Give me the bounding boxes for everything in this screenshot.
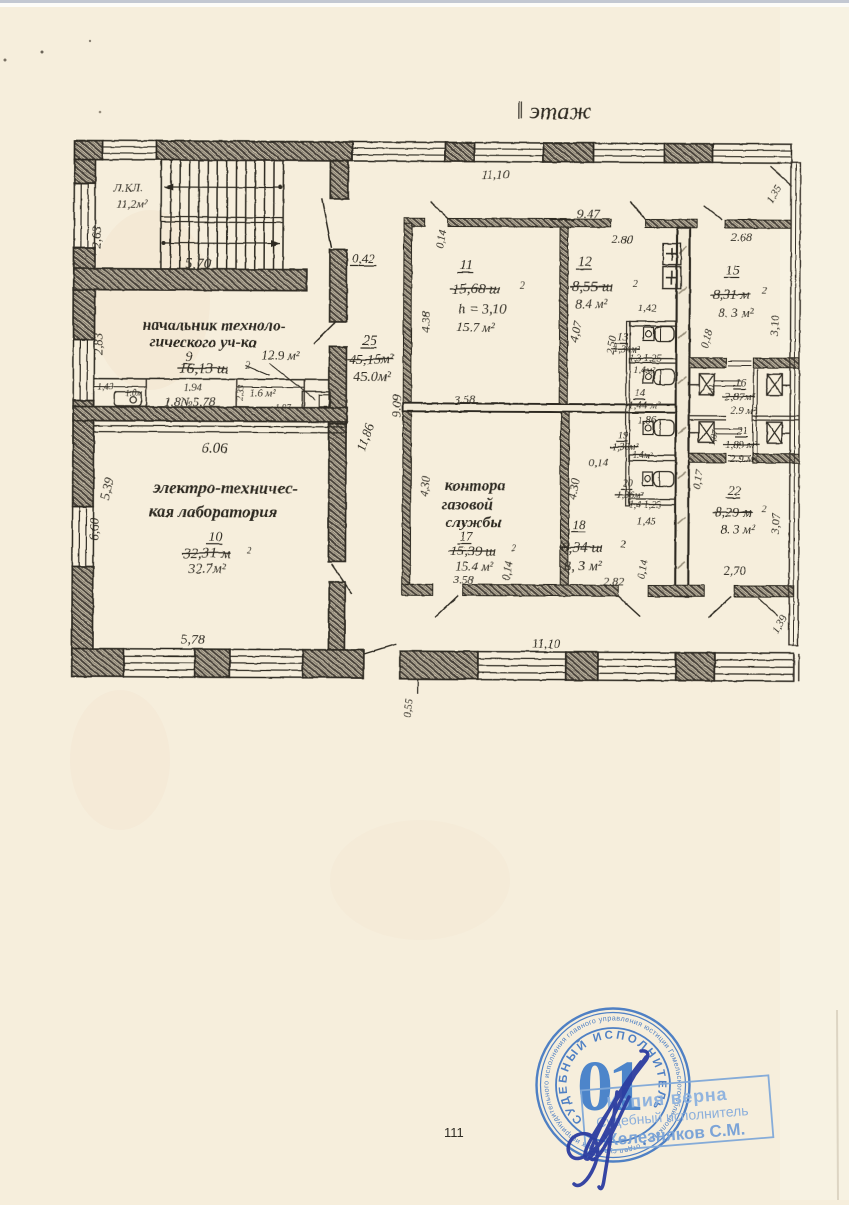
- svg-text:контора: контора: [444, 477, 505, 494]
- svg-text:11: 11: [459, 258, 472, 273]
- svg-text:14: 14: [635, 387, 647, 399]
- svg-text:8,29 м: 8,29 м: [714, 505, 751, 520]
- svg-text:гического уч-ка: гического уч-ка: [149, 333, 256, 351]
- svg-text:12.9 м²: 12.9 м²: [261, 347, 300, 362]
- svg-text:15,68 ш: 15,68 ш: [451, 281, 500, 297]
- svg-text:2,63: 2,63: [88, 225, 103, 248]
- svg-text:6,60: 6,60: [86, 517, 101, 540]
- svg-text:h = 3,10: h = 3,10: [458, 302, 506, 317]
- svg-text:3,10: 3,10: [767, 315, 781, 337]
- svg-text:3.58: 3.58: [453, 392, 475, 406]
- svg-text:1,0: 1,0: [705, 383, 717, 396]
- svg-text:кая лаборатория: кая лаборатория: [148, 501, 277, 521]
- svg-text:2.9 м²: 2.9 м²: [730, 404, 758, 416]
- svg-text:1.4м²: 1.4м²: [633, 365, 656, 376]
- svg-text:начальник техноло-: начальник техноло-: [142, 316, 286, 334]
- svg-text:8.4 м²: 8.4 м²: [575, 296, 608, 311]
- svg-text:32.7м²: 32.7м²: [187, 562, 227, 577]
- svg-text:8,34 ш: 8,34 ш: [561, 540, 602, 556]
- svg-text:Л.КЛ.: Л.КЛ.: [112, 180, 143, 194]
- svg-text:2,33: 2,33: [234, 384, 245, 401]
- svg-text:32,31 м: 32,31 м: [182, 546, 231, 562]
- svg-text:11,10: 11,10: [531, 635, 560, 650]
- svg-text:1,86: 1,86: [637, 414, 657, 426]
- svg-text:2: 2: [511, 542, 516, 552]
- svg-text:1,42: 1,42: [637, 302, 657, 314]
- svg-text:22: 22: [727, 482, 741, 497]
- svg-text:18: 18: [572, 517, 586, 532]
- svg-text:1,4 1,25: 1,4 1,25: [628, 500, 661, 511]
- svg-text:10: 10: [208, 530, 222, 545]
- svg-text:8, 3 м²: 8, 3 м²: [564, 559, 603, 574]
- svg-text:1.0м: 1.0м: [125, 387, 142, 397]
- svg-text:15.4 м²: 15.4 м²: [455, 558, 494, 573]
- svg-text:9.47: 9.47: [577, 206, 600, 221]
- svg-text:2: 2: [761, 286, 766, 297]
- svg-text:ǁ этаж: ǁ этаж: [516, 98, 591, 124]
- svg-text:111: 111: [444, 1125, 464, 1140]
- svg-text:1.4м²: 1.4м²: [632, 450, 652, 460]
- svg-text:2: 2: [632, 278, 637, 289]
- svg-text:16: 16: [735, 376, 747, 388]
- svg-text:2: 2: [620, 539, 625, 550]
- svg-text:8,55 ш: 8,55 ш: [571, 279, 612, 295]
- svg-text:1.94: 1.94: [184, 383, 202, 394]
- svg-text:1,43: 1,43: [98, 381, 114, 391]
- svg-text:15: 15: [725, 263, 739, 278]
- svg-text:11,2м²: 11,2м²: [116, 196, 148, 210]
- svg-text:службы: службы: [445, 514, 501, 531]
- svg-text:20: 20: [622, 478, 632, 489]
- svg-text:2: 2: [519, 280, 524, 291]
- svg-text:2: 2: [761, 504, 766, 515]
- svg-text:9.09: 9.09: [389, 393, 404, 416]
- svg-text:16,13 ш: 16,13 ш: [179, 361, 228, 377]
- svg-text:2,70: 2,70: [723, 562, 746, 577]
- svg-text:45.0м²: 45.0м²: [353, 369, 392, 384]
- svg-text:2: 2: [246, 545, 251, 556]
- svg-text:12: 12: [577, 255, 591, 270]
- svg-text:0,42: 0,42: [351, 250, 374, 265]
- svg-text:газовой: газовой: [441, 496, 493, 513]
- svg-text:8,31 м: 8,31 м: [712, 287, 749, 302]
- svg-text:17: 17: [459, 528, 473, 543]
- svg-text:6.06: 6.06: [201, 441, 228, 457]
- svg-text:25: 25: [362, 333, 378, 349]
- svg-text:1.6 м²: 1.6 м²: [249, 387, 277, 399]
- svg-text:2.68: 2.68: [731, 229, 752, 243]
- svg-text:2.80: 2.80: [612, 232, 633, 246]
- svg-text:8. 3 м²: 8. 3 м²: [720, 521, 756, 536]
- svg-text:электро-техничес-: электро-техничес-: [152, 477, 298, 497]
- svg-text:2,83: 2,83: [90, 332, 105, 355]
- svg-text:15,39 ш: 15,39 ш: [450, 544, 496, 559]
- svg-text:11,10: 11,10: [481, 166, 510, 181]
- svg-text:1,45: 1,45: [636, 515, 656, 527]
- svg-text:1,3 1,25: 1,3 1,25: [629, 353, 662, 364]
- svg-text:4.38: 4.38: [418, 311, 432, 332]
- svg-text:4,30: 4,30: [416, 475, 432, 497]
- svg-text:3,07: 3,07: [768, 512, 782, 535]
- svg-text:5,78: 5,78: [180, 633, 205, 648]
- svg-text:15.7 м²: 15.7 м²: [456, 319, 495, 334]
- svg-text:0,14: 0,14: [588, 457, 608, 469]
- svg-text:21: 21: [737, 424, 748, 436]
- svg-text:8. 3 м²: 8. 3 м²: [718, 304, 754, 319]
- svg-text:19: 19: [617, 430, 627, 441]
- svg-text:2.9 м²: 2.9 м²: [729, 452, 757, 464]
- svg-text:45,15м²: 45,15м²: [349, 352, 395, 367]
